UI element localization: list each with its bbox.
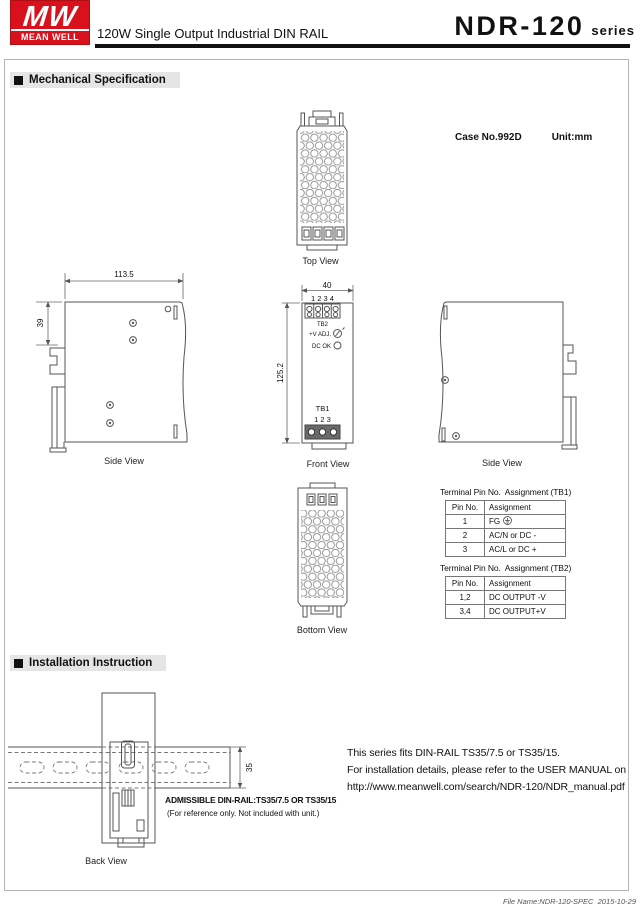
pin-no: 3 [446, 543, 485, 557]
back-view-drawing: 35 [6, 688, 258, 853]
section-title: Installation Instruction [29, 657, 152, 669]
din-clip-hook [50, 348, 65, 374]
section-title: Mechanical Specification [29, 74, 166, 86]
dim-40: 40 [323, 281, 332, 290]
top-view-drawing [296, 110, 348, 252]
assignment: AC/L or DC + [485, 543, 566, 557]
header-rule [95, 44, 630, 48]
table-row: 3 AC/L or DC + [446, 543, 566, 557]
datasheet-page: MW MEAN WELL 120W Single Output Industri… [0, 0, 640, 912]
logo-mw-text: MW [10, 5, 91, 29]
dim-35: 35 [245, 763, 254, 772]
tb1-pin-numbers: 1 2 3 [314, 415, 331, 424]
assignment: DC OUTPUT -V [485, 591, 566, 605]
tb2-table: Pin No. Assignment 1,2 DC OUTPUT -V 3,4 … [445, 576, 566, 619]
assignment: DC OUTPUT+V [485, 605, 566, 619]
top-view-group: Top View [296, 110, 348, 257]
pin-no: 1 [446, 515, 485, 529]
section-header-installation: Installation Instruction [10, 655, 166, 671]
note-line-url: http://www.meanwell.com/search/NDR-120/N… [347, 779, 626, 796]
dim-125-2: 125.2 [276, 362, 285, 383]
product-line-title: 120W Single Output Industrial DIN RAIL [97, 26, 328, 41]
back-view-group: 35 Back View [6, 688, 258, 858]
bottom-view-group: Bottom View [294, 470, 350, 627]
assignment: AC/N or DC - [485, 529, 566, 543]
table-row: 3,4 DC OUTPUT+V [446, 605, 566, 619]
note-line: For installation details, please refer t… [347, 762, 626, 779]
vadj-label: +V ADJ. [309, 332, 331, 338]
earth-ground-icon [503, 516, 512, 527]
tb2-col-pin: Pin No. [446, 577, 485, 591]
pin-no: 3,4 [446, 605, 485, 619]
tb2-table-block: Terminal Pin No. Assignment (TB2) Pin No… [440, 563, 571, 619]
unit-label: Unit:mm [552, 132, 593, 143]
side-view-right-group: Side View [432, 290, 582, 460]
case-info: Case No.992D Unit:mm [455, 132, 592, 143]
side-view-left-drawing: 113.5 39 [28, 262, 238, 454]
pin-no: 1,2 [446, 591, 485, 605]
tb1-table-block: Terminal Pin No. Assignment (TB1) Pin No… [440, 487, 571, 557]
front-view-group: 40 125.2 1 2 3 4 TB2 +V ADJ. DC [272, 278, 362, 459]
side-view-right-drawing [432, 290, 582, 455]
table-row: 1 FG [446, 515, 566, 529]
model-block: NDR-120 series [454, 11, 635, 42]
din-clip-hook [563, 345, 576, 374]
top-view-label: Top View [285, 256, 356, 266]
section-header-mechanical: Mechanical Specification [10, 72, 180, 88]
series-suffix: series [591, 23, 635, 38]
tb1-table: Pin No. Assignment 1 FG 2 AC/N or DC - 3… [445, 500, 566, 557]
front-view-label: Front View [298, 459, 358, 469]
file-name-footer: File Name:NDR-120-SPEC 2015-10-29 [503, 897, 636, 906]
admissible-din-rail-note: ADMISSIBLE DIN-RAIL:TS35/7.5 OR TS35/15 [165, 795, 336, 805]
meanwell-logo: MW MEAN WELL [10, 0, 90, 45]
installation-note: This series fits DIN-RAIL TS35/7.5 or TS… [347, 745, 626, 796]
assignment: FG [485, 515, 566, 529]
din-clip-spring [563, 397, 576, 445]
tb2-col-assignment: Assignment [485, 577, 566, 591]
side-view-left-label: Side View [94, 456, 154, 466]
reference-note: (For reference only. Not included with u… [167, 809, 319, 818]
tb2-pin-numbers: 1 2 3 4 [311, 294, 334, 303]
section-bullet-icon [14, 659, 23, 668]
tb1-table-title: Terminal Pin No. Assignment (TB1) [440, 487, 571, 497]
model-name: NDR-120 [454, 11, 584, 42]
dim-113-5: 113.5 [114, 270, 134, 279]
section-bullet-icon [14, 76, 23, 85]
tb1-terminal-block [305, 425, 340, 439]
dcok-label: DC OK [312, 344, 331, 350]
tb2-label: TB2 [317, 322, 329, 328]
dim-39: 39 [36, 318, 45, 327]
assignment-text: FG [489, 517, 500, 526]
tb1-col-pin: Pin No. [446, 501, 485, 515]
front-view-drawing: 40 125.2 1 2 3 4 TB2 +V ADJ. DC [272, 278, 362, 454]
bottom-view-drawing [294, 470, 350, 622]
side-view-right-label: Side View [472, 458, 532, 468]
table-row: 2 AC/N or DC - [446, 529, 566, 543]
case-number: Case No.992D [455, 132, 522, 143]
din-clip-spring [52, 387, 65, 448]
side-view-left-group: 113.5 39 Side View [28, 262, 238, 459]
back-view-label: Back View [76, 856, 136, 866]
table-row: 1,2 DC OUTPUT -V [446, 591, 566, 605]
tb2-table-title: Terminal Pin No. Assignment (TB2) [440, 563, 571, 573]
bottom-view-label: Bottom View [286, 625, 358, 635]
tb1-label: TB1 [316, 404, 330, 413]
note-line: This series fits DIN-RAIL TS35/7.5 or TS… [347, 745, 626, 762]
tb1-col-assignment: Assignment [485, 501, 566, 515]
pin-no: 2 [446, 529, 485, 543]
